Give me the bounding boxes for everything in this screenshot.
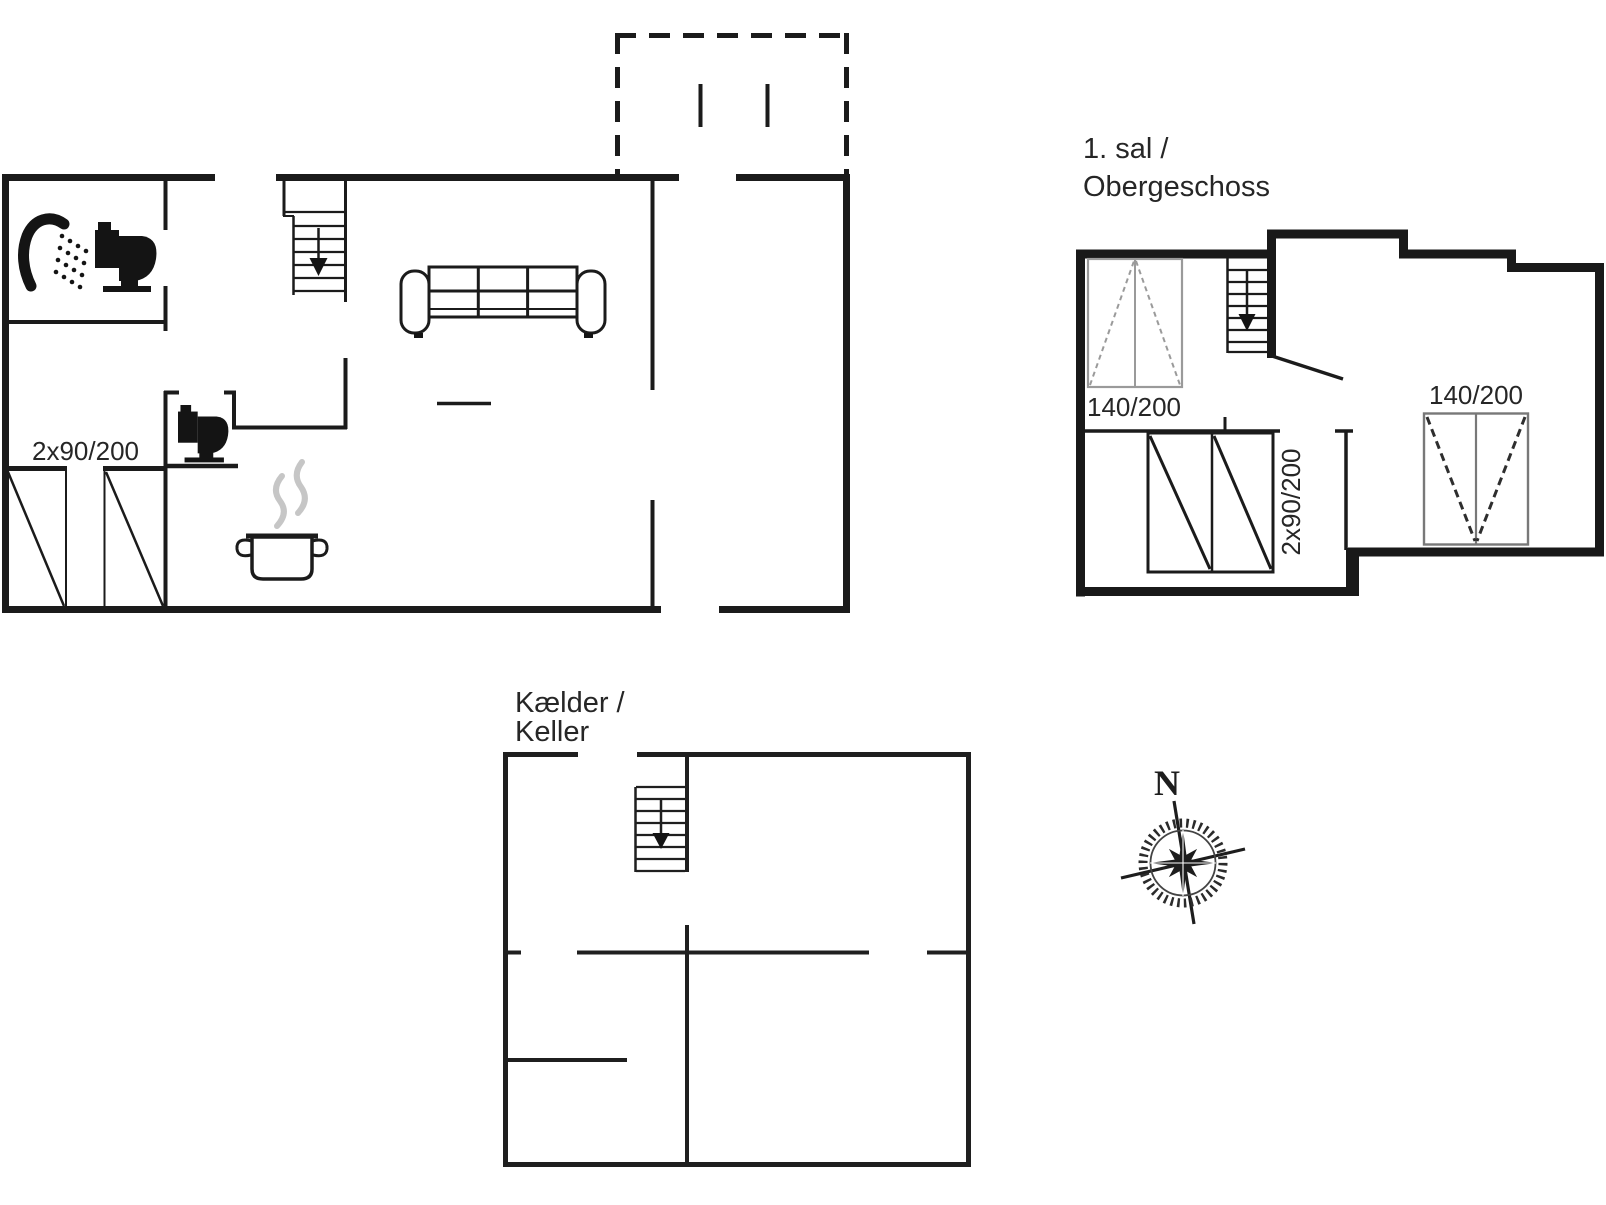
basement-title-line2: Keller xyxy=(515,716,589,748)
compass-north-label: N xyxy=(1154,763,1180,803)
toilet-icon xyxy=(95,222,156,292)
ground-floor-twin-beds xyxy=(2,468,167,608)
ground-bed-dimension-label: 2x90/200 xyxy=(32,436,139,466)
upper-floor-interior-walls xyxy=(1085,356,1353,550)
basement-interior-walls xyxy=(503,752,969,1165)
floor-plan-page: 2x90/200 xyxy=(0,0,1606,1205)
terrace-dashed-outline xyxy=(615,33,849,177)
bed-symbol-upper-left xyxy=(1088,259,1182,387)
upper-right-bed-label: 140/200 xyxy=(1429,380,1523,410)
toilet-icon-2 xyxy=(178,405,228,462)
stairs-down-icon xyxy=(283,179,344,295)
steam-2 xyxy=(297,462,305,513)
upper-floor-title-line1: 1. sal / xyxy=(1083,133,1169,165)
stairs-down-icon-basement xyxy=(636,787,686,872)
upper-floor-plan: 1. sal / Obergeschoss 140/200 140/200 2x… xyxy=(1076,133,1604,597)
stairs-down-icon-upper xyxy=(1228,258,1268,353)
shower-icon xyxy=(24,219,89,289)
bed-symbol-upper-double xyxy=(1148,433,1273,572)
steam xyxy=(276,476,284,526)
cooking-pot-icon xyxy=(237,462,327,579)
terrace-door-marks xyxy=(701,84,768,127)
upper-double-bed-label: 2x90/200 xyxy=(1276,449,1306,556)
basement-outer-walls xyxy=(503,752,971,1167)
bed-symbol-upper-right xyxy=(1424,414,1528,545)
basement-plan: Kælder / Keller xyxy=(503,687,971,1167)
upper-left-bed-label: 140/200 xyxy=(1087,392,1181,422)
upper-floor-title-line2: Obergeschoss xyxy=(1083,171,1270,203)
compass-rose-icon: N xyxy=(1121,763,1245,924)
sofa-icon xyxy=(401,267,605,338)
ground-floor-plan: 2x90/200 xyxy=(2,174,850,613)
basement-title-line1: Kælder / xyxy=(515,687,626,719)
